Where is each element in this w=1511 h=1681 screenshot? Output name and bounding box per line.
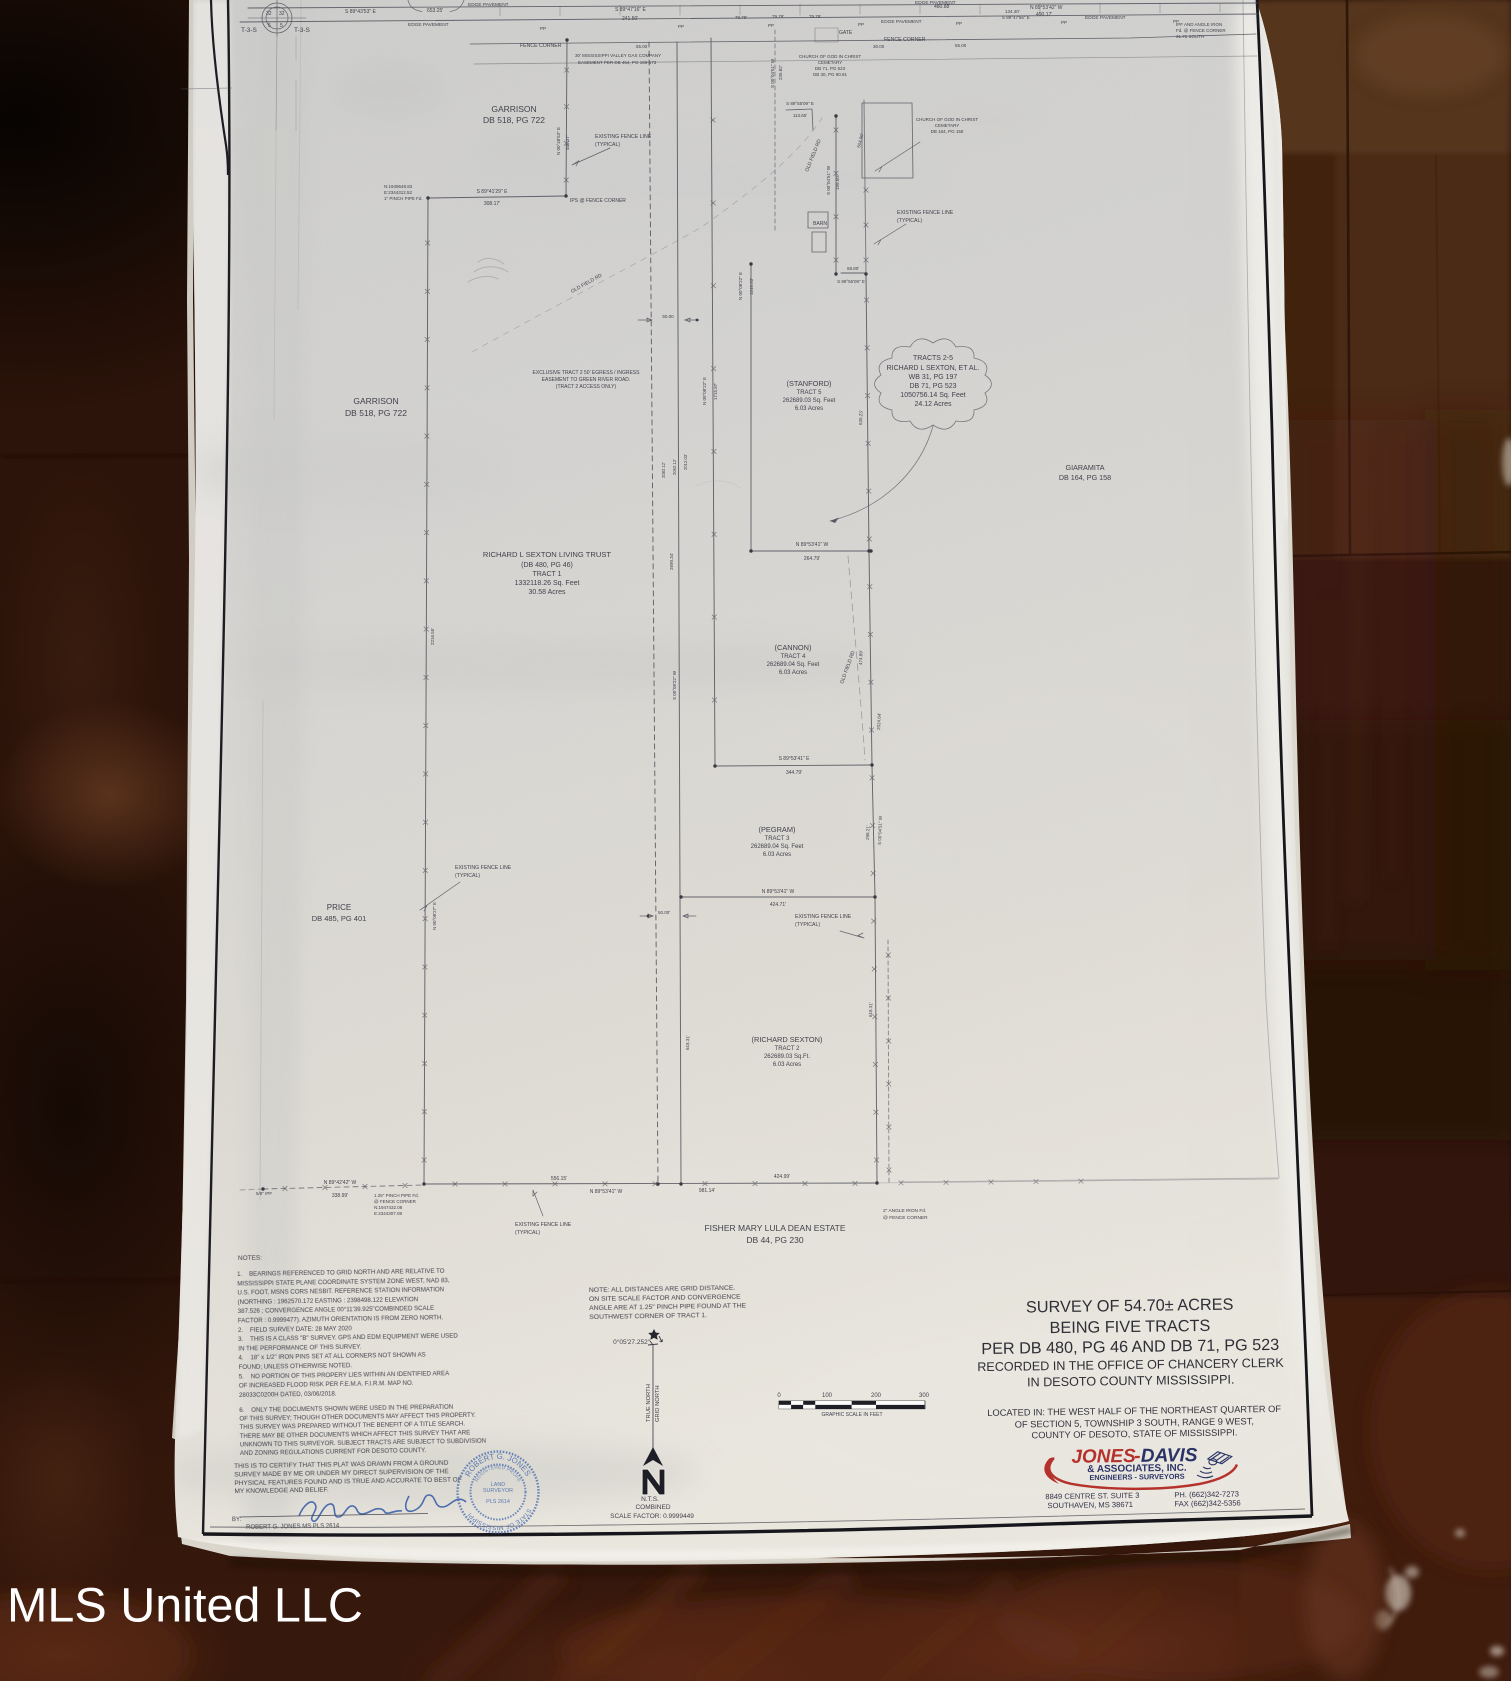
svg-text:MLS United LLC: MLS United LLC — [7, 1579, 363, 1633]
